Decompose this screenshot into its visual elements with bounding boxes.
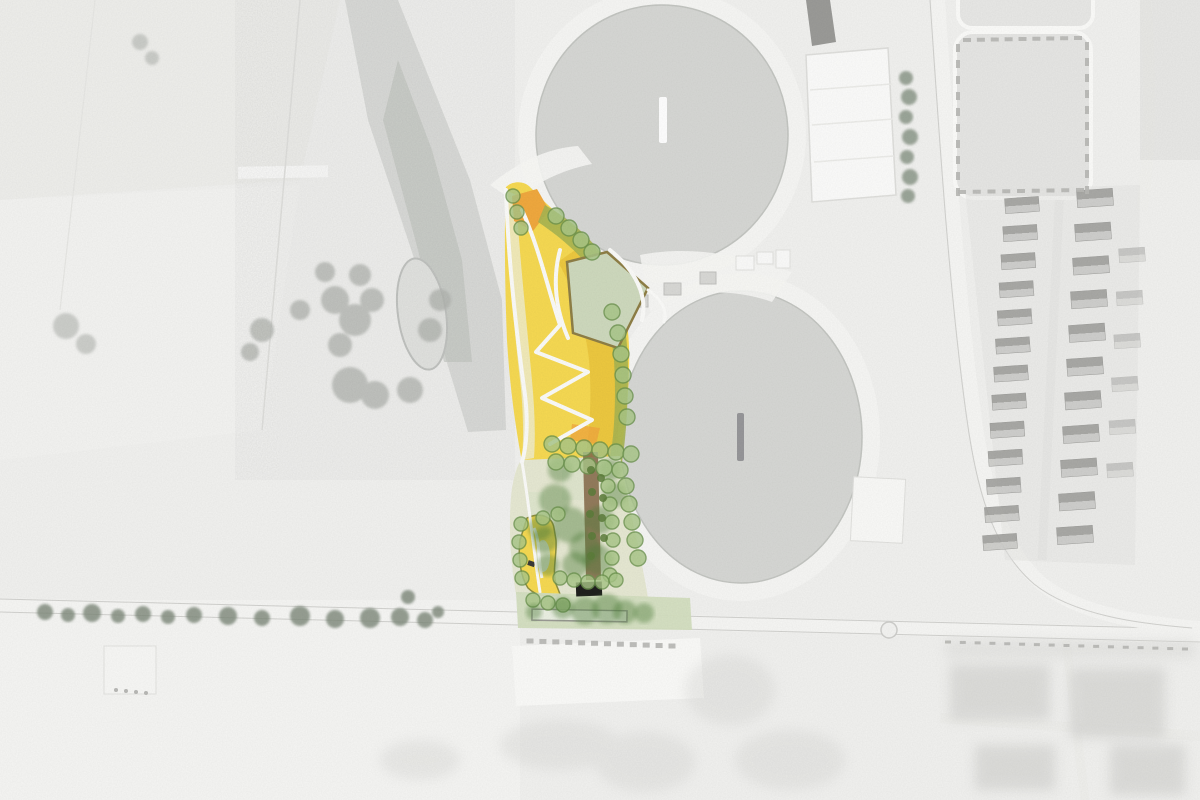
- plan-tree-marker: [630, 550, 646, 566]
- plan-tree-marker: [548, 208, 564, 224]
- house-roof: [1001, 252, 1036, 269]
- vehicle-tick: [945, 641, 951, 644]
- house-roof: [994, 365, 1029, 382]
- house-roof: [1056, 525, 1093, 544]
- vehicle-tick: [1108, 645, 1114, 648]
- vehicle-tick: [552, 639, 559, 644]
- vehicle-tick: [1182, 648, 1188, 651]
- vehicle-tick: [617, 642, 624, 647]
- vehicle-tick: [956, 108, 960, 116]
- vehicle-tick: [1123, 646, 1129, 649]
- shed: [700, 272, 716, 284]
- vehicle-tick: [1019, 643, 1025, 646]
- vehicle-tick: [1046, 37, 1054, 41]
- vehicle-tick: [1085, 186, 1089, 194]
- vehicle-tick: [1064, 644, 1070, 647]
- roadside-canopy: [634, 603, 654, 623]
- vehicle-tick: [963, 38, 971, 42]
- roadside-canopy: [552, 597, 574, 619]
- vehicle-tick: [1061, 188, 1069, 192]
- white-building: [757, 252, 773, 264]
- existing-road-tree: [432, 606, 444, 618]
- existing-road-tree: [161, 610, 175, 624]
- plan-tree-marker: [612, 462, 628, 478]
- existing-road-tree: [326, 610, 344, 628]
- industrial-road-tree: [899, 110, 913, 124]
- house-roof: [1119, 247, 1146, 263]
- vehicle-tick: [956, 60, 960, 68]
- vehicle-tick: [1005, 37, 1013, 41]
- plan-tree-marker: [615, 367, 631, 383]
- vehicle-tick: [1085, 106, 1089, 114]
- vehicle-tick: [1138, 646, 1144, 649]
- vehicle-tick: [1019, 37, 1027, 41]
- house-roof: [983, 533, 1018, 550]
- house-roof: [988, 449, 1023, 466]
- house-roof: [1058, 492, 1095, 511]
- vehicle-tick: [956, 156, 960, 164]
- house-roof: [1109, 419, 1136, 435]
- aerial-masterplan-map: [0, 0, 1200, 800]
- vehicle-tick: [956, 76, 960, 84]
- plan-tree-marker: [514, 221, 528, 235]
- existing-road-tree: [417, 612, 433, 628]
- plan-tree-marker: [609, 573, 623, 587]
- house-roof: [997, 309, 1032, 326]
- vehicle-tick: [1074, 36, 1082, 40]
- vehicle-tick: [1085, 42, 1089, 50]
- vehicle-tick: [1004, 642, 1010, 645]
- parking-lot: [958, 0, 1093, 28]
- existing-road-tree: [186, 607, 202, 623]
- roadside-canopy: [613, 600, 637, 624]
- shrub-dot: [600, 534, 608, 542]
- vehicle-tick: [1076, 188, 1084, 192]
- plan-tree-marker: [624, 514, 640, 530]
- house-roof: [1116, 290, 1143, 306]
- vehicle-tick: [527, 639, 534, 644]
- plan-tree-marker: [621, 496, 637, 512]
- vehicle-tick: [988, 190, 996, 194]
- vehicle-tick: [1085, 170, 1089, 178]
- plan-tree-marker: [536, 511, 550, 525]
- house-roof: [1066, 357, 1103, 376]
- house-roof: [1064, 390, 1101, 409]
- vehicle-tick: [565, 640, 572, 645]
- house-roof: [1111, 376, 1138, 392]
- plan-tree-marker: [560, 438, 576, 454]
- shrub-dot: [598, 514, 606, 522]
- white-building: [776, 250, 790, 268]
- vehicle-tick: [578, 640, 585, 645]
- house-roof: [1074, 222, 1111, 241]
- vehicle-tick: [1085, 58, 1089, 66]
- vehicle-tick: [956, 92, 960, 100]
- vehicle-tick: [1085, 122, 1089, 130]
- existing-road-tree: [219, 607, 237, 625]
- gray-strip: [1140, 0, 1200, 160]
- plan-tree-marker: [596, 460, 612, 476]
- house-roof: [995, 337, 1030, 354]
- vehicle-tick: [539, 639, 546, 644]
- plan-tree-marker: [623, 446, 639, 462]
- plan-tree-marker: [551, 507, 565, 521]
- existing-road-tree: [111, 609, 125, 623]
- roadside-canopy: [526, 604, 542, 620]
- plan-tree-marker: [608, 444, 624, 460]
- shed: [664, 283, 681, 295]
- plan-tree-marker: [613, 346, 629, 362]
- house-roof: [1114, 333, 1141, 349]
- vehicle-tick: [656, 643, 663, 648]
- plan-tree-marker: [584, 244, 600, 260]
- industrial-road-tree: [902, 129, 918, 145]
- vehicle-tick: [630, 642, 637, 647]
- vehicle-tick: [1017, 189, 1025, 193]
- existing-road-tree: [83, 604, 101, 622]
- plan-tree-marker: [553, 571, 567, 585]
- industrial-road-tree: [901, 189, 915, 203]
- shrub-dot: [599, 494, 607, 502]
- industrial-road-tree: [902, 169, 918, 185]
- house-roof: [1062, 424, 1099, 443]
- house-roof: [992, 393, 1027, 410]
- house-roof: [990, 421, 1025, 438]
- storage-basin-south-marker: [737, 413, 744, 461]
- plan-tree-marker: [610, 325, 626, 341]
- plan-tree-marker: [617, 388, 633, 404]
- plan-tree-marker: [606, 533, 620, 547]
- plan-tree-marker: [564, 456, 580, 472]
- map-canvas: [0, 0, 1200, 800]
- vehicle-tick: [991, 38, 999, 42]
- vehicle-tick: [989, 642, 995, 645]
- plan-tree-marker: [581, 575, 595, 589]
- house-roof: [1070, 289, 1107, 308]
- plan-tree-marker: [514, 517, 528, 531]
- existing-road-tree: [401, 590, 415, 604]
- vehicle-tick: [956, 44, 960, 52]
- vehicle-tick: [1085, 90, 1089, 98]
- plan-tree-marker: [548, 454, 564, 470]
- industrial-road-tree: [900, 150, 914, 164]
- existing-road-tree: [290, 606, 310, 626]
- roundabout: [881, 622, 897, 638]
- shrub-dot: [597, 474, 605, 482]
- vehicle-tick: [591, 641, 598, 646]
- plan-tree-marker: [618, 478, 634, 494]
- vehicle-tick: [1085, 138, 1089, 146]
- vehicle-tick: [1034, 643, 1040, 646]
- barn: [104, 646, 156, 694]
- plan-tree-marker: [619, 409, 635, 425]
- house-roof: [1107, 462, 1134, 478]
- existing-road-tree: [391, 608, 409, 626]
- vehicle-tick: [956, 124, 960, 132]
- house-roof: [1005, 196, 1040, 213]
- vehicle-tick: [977, 38, 985, 42]
- vehicle-tick: [1032, 189, 1040, 193]
- vehicle-tick: [1093, 645, 1099, 648]
- vehicle-tick: [1085, 74, 1089, 82]
- plan-tree-marker: [592, 442, 608, 458]
- vehicle-tick: [1152, 647, 1158, 650]
- vehicle-tick: [1049, 644, 1055, 647]
- white-building: [736, 256, 754, 270]
- vehicle-tick: [973, 190, 981, 194]
- vehicle-tick: [1060, 36, 1068, 40]
- plan-tree-marker: [513, 553, 527, 567]
- plan-tree-marker: [605, 551, 619, 565]
- shrub-dot: [588, 532, 596, 540]
- vehicle-tick: [956, 188, 960, 196]
- shrub-dot: [588, 488, 596, 496]
- house-roof: [999, 281, 1034, 298]
- house-roof: [984, 505, 1019, 522]
- vehicle-tick: [1167, 647, 1173, 650]
- industrial-road-tree: [901, 89, 917, 105]
- industrial-road-tree: [899, 71, 913, 85]
- plan-tree-marker: [512, 535, 526, 549]
- vehicle-tick: [1047, 189, 1055, 193]
- existing-road-tree: [37, 604, 53, 620]
- existing-road-tree: [61, 608, 75, 622]
- plan-tree-marker: [604, 304, 620, 320]
- vehicle-tick: [669, 644, 676, 649]
- plan-tree-marker: [627, 532, 643, 548]
- plan-tree-marker: [561, 220, 577, 236]
- vehicle-tick: [956, 140, 960, 148]
- plan-tree-marker: [605, 515, 619, 529]
- vehicle-tick: [960, 641, 966, 644]
- plan-tree-marker: [515, 571, 529, 585]
- house-roof: [1068, 323, 1105, 342]
- storage-basin-north-marker: [659, 97, 667, 143]
- shrub-dot: [587, 552, 595, 560]
- plan-tree-marker: [544, 436, 560, 452]
- vehicle-tick: [1002, 189, 1010, 193]
- field-strip: [238, 165, 328, 179]
- white-building: [850, 477, 905, 544]
- vehicle-tick: [1032, 37, 1040, 41]
- plan-tree-marker: [576, 440, 592, 456]
- shrub-dot: [586, 510, 594, 518]
- existing-road-tree: [254, 610, 270, 626]
- plan-tree-marker: [595, 575, 609, 589]
- existing-road-tree: [135, 606, 151, 622]
- plan-tree-marker: [510, 205, 524, 219]
- vehicle-tick: [975, 641, 981, 644]
- vehicle-tick: [1078, 644, 1084, 647]
- plan-tree-marker: [506, 189, 520, 203]
- house-roof: [1072, 256, 1109, 275]
- existing-road-tree: [360, 608, 380, 628]
- vehicle-tick: [1085, 154, 1089, 162]
- house-roof: [1060, 458, 1097, 477]
- shrub-dot: [587, 466, 595, 474]
- vehicle-tick: [604, 641, 611, 646]
- parking-lot: [955, 32, 1091, 198]
- plan-tree-marker: [567, 573, 581, 587]
- vehicle-tick: [643, 643, 650, 648]
- vehicle-tick: [956, 172, 960, 180]
- house-roof: [986, 477, 1021, 494]
- house-roof: [1003, 224, 1038, 241]
